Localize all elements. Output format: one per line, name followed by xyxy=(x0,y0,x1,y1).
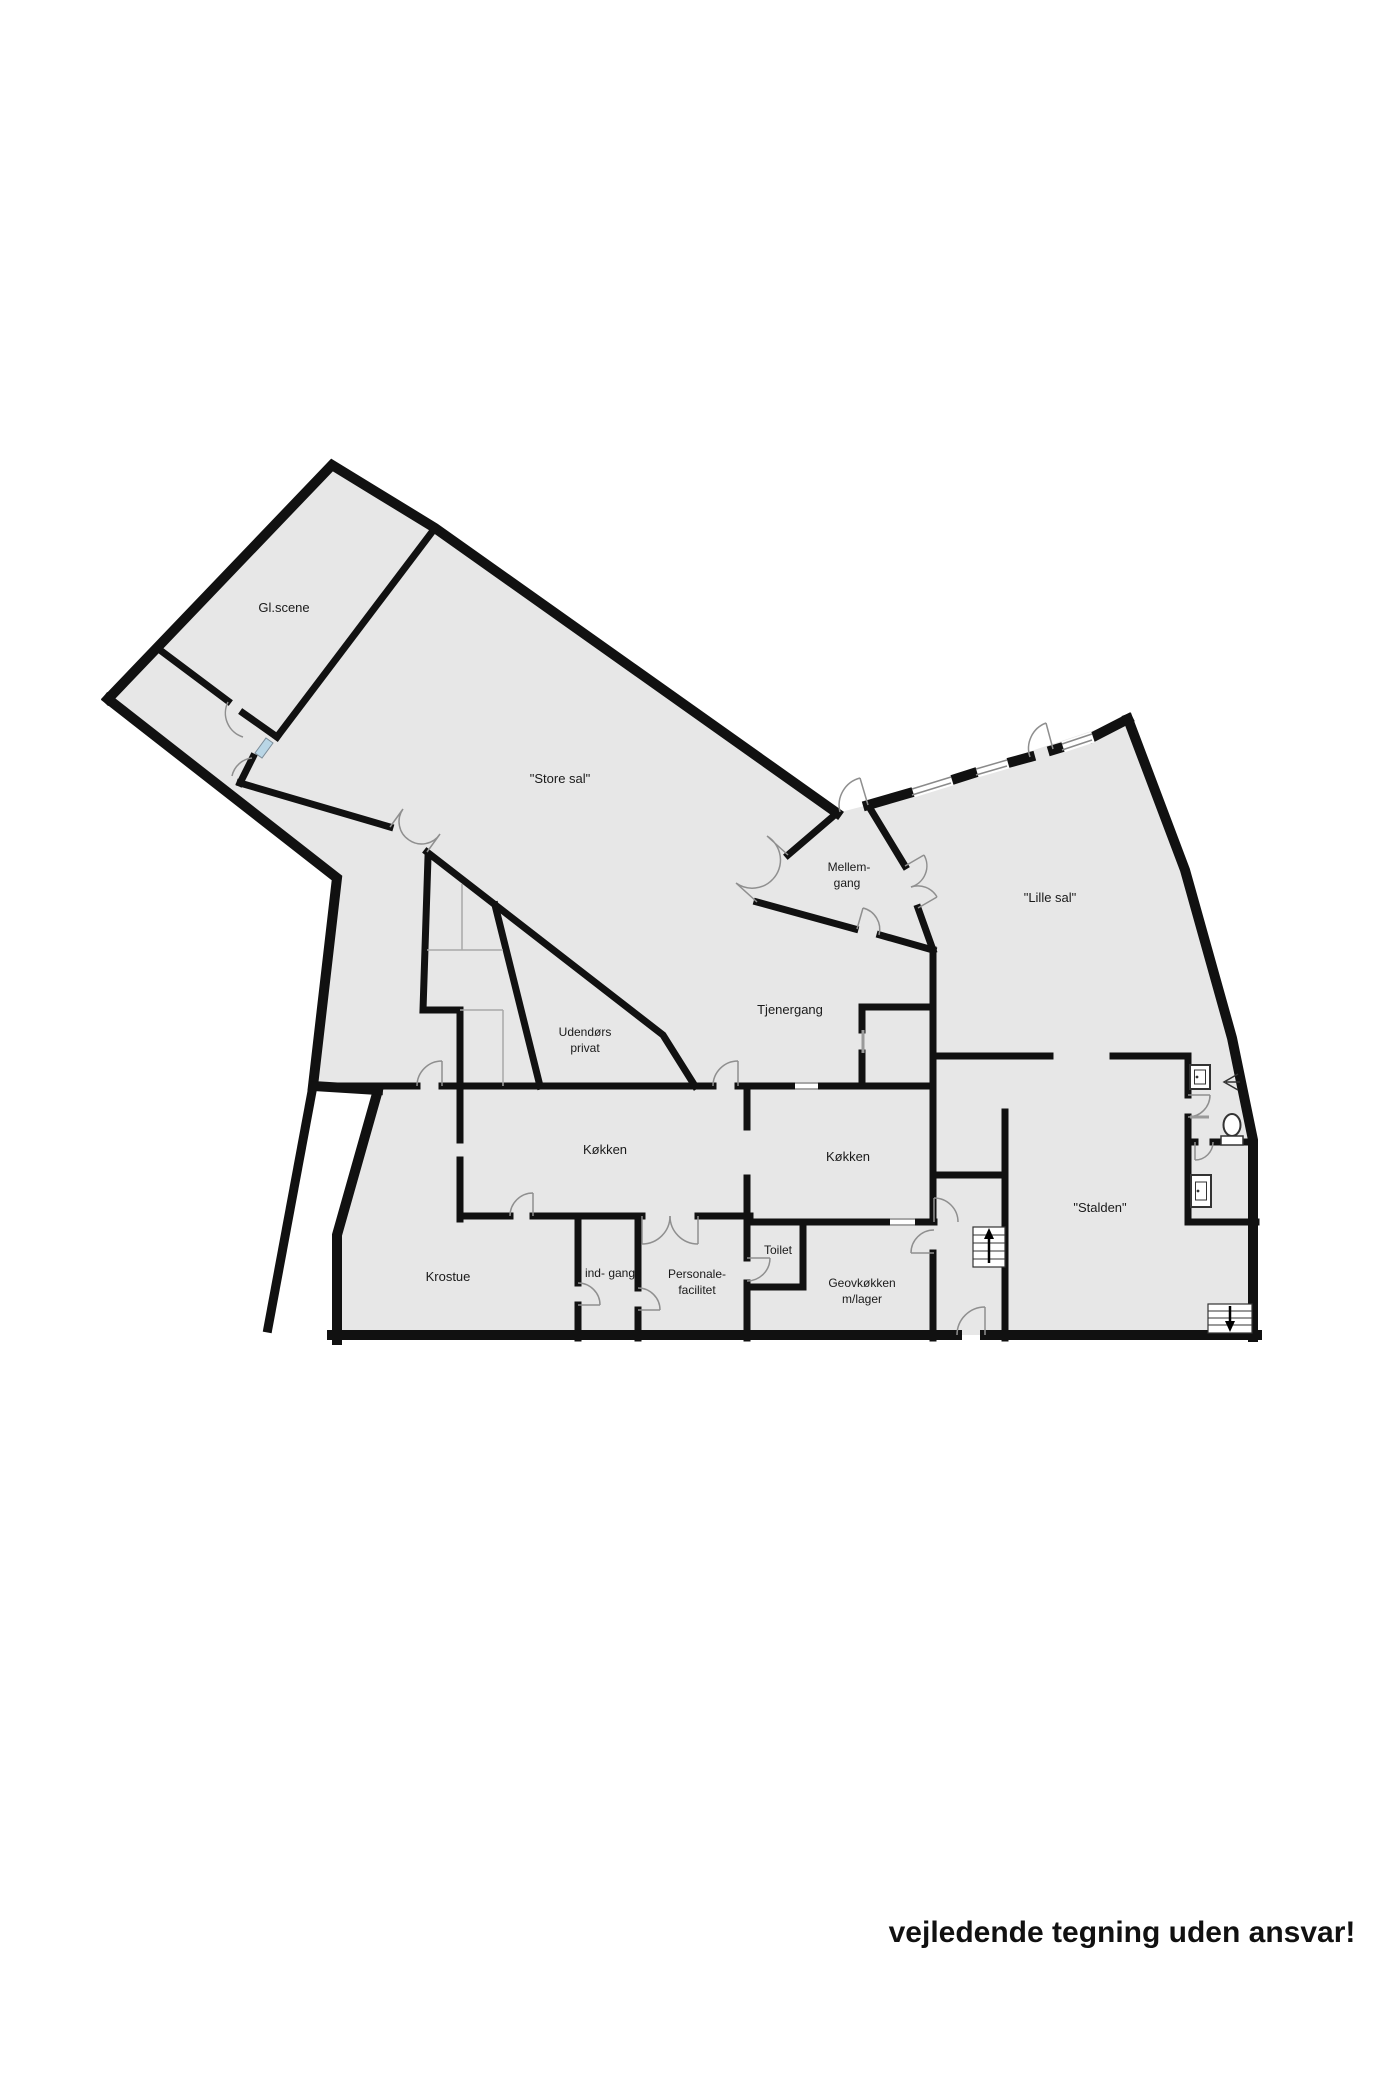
room-label-personale-2: facilitet xyxy=(678,1283,716,1297)
floor-plan: Gl.scene "Store sal" Mellem- gang "Lille… xyxy=(0,0,1400,2100)
room-label-krostue: Krostue xyxy=(426,1269,471,1284)
outer-wall-fin xyxy=(268,1086,313,1328)
room-label-kokken-ost: Køkken xyxy=(826,1149,870,1164)
room-label-stalden: "Stalden" xyxy=(1073,1200,1127,1215)
room-label-gl-scene: Gl.scene xyxy=(258,600,309,615)
room-label-udendors-1: Udendørs xyxy=(559,1025,612,1039)
room-label-udendors-2: privat xyxy=(570,1041,600,1055)
room-label-geovkokken-2: m/lager xyxy=(842,1292,882,1306)
room-label-kokken-vest: Køkken xyxy=(583,1142,627,1157)
room-label-mellemgang-2: gang xyxy=(834,876,861,890)
room-label-mellemgang-1: Mellem- xyxy=(828,860,871,874)
room-label-indgang: ind- gang xyxy=(585,1266,635,1280)
room-label-personale-1: Personale- xyxy=(668,1267,726,1281)
stairs-up-icon xyxy=(973,1227,1005,1267)
room-label-tjenergang: Tjenergang xyxy=(757,1002,823,1017)
room-label-store-sal: "Store sal" xyxy=(530,771,591,786)
disclaimer-text: vejledende tegning uden ansvar! xyxy=(889,1916,1356,1949)
room-label-lille-sal: "Lille sal" xyxy=(1024,890,1077,905)
toilet-icon xyxy=(1221,1114,1243,1145)
stairs-down-icon xyxy=(1208,1304,1252,1333)
room-label-toilet: Toilet xyxy=(764,1243,793,1257)
floorplan-page: Gl.scene "Store sal" Mellem- gang "Lille… xyxy=(0,0,1400,2100)
room-label-geovkokken-1: Geovkøkken xyxy=(828,1276,895,1290)
